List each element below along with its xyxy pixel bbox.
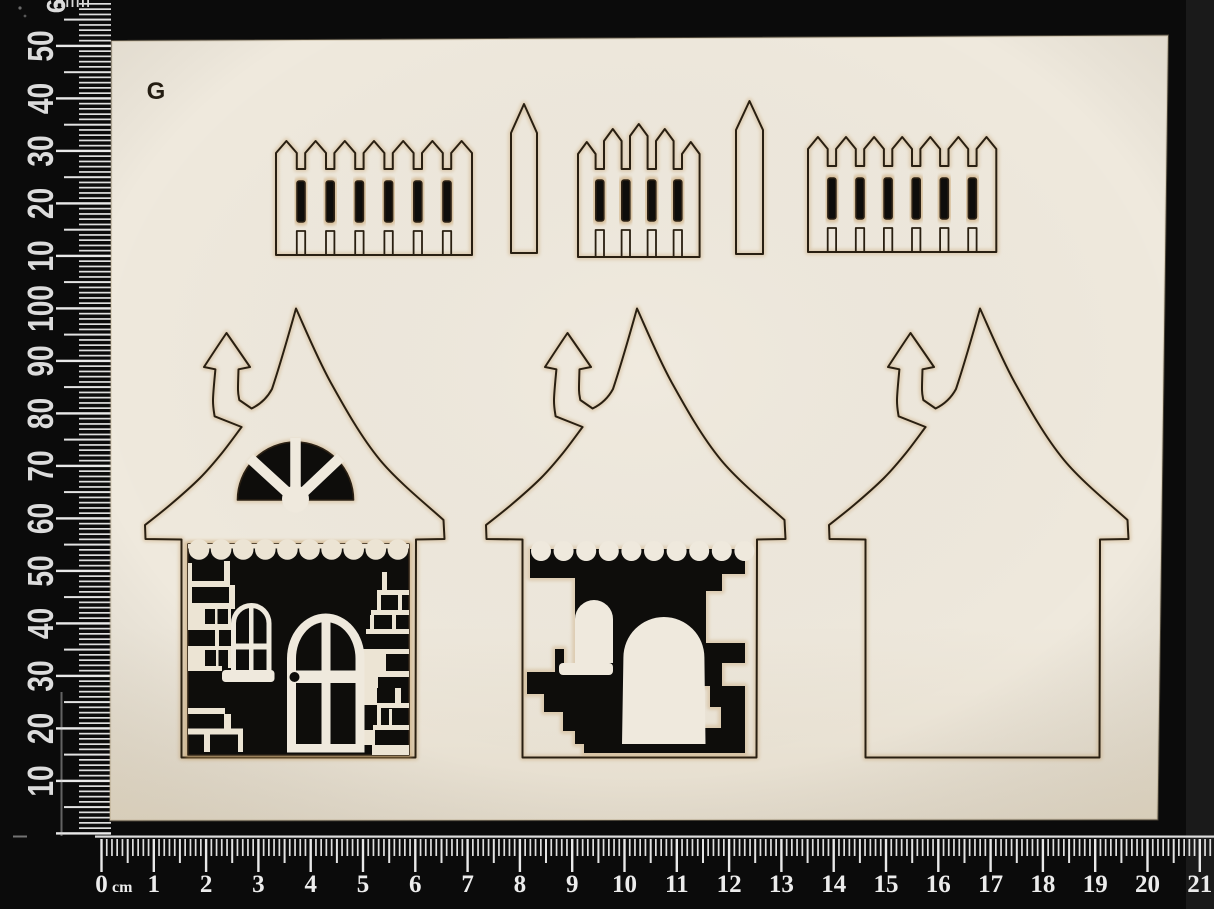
svg-text:5: 5	[357, 871, 370, 898]
svg-text:16: 16	[926, 871, 951, 898]
svg-text:20: 20	[1135, 871, 1160, 898]
svg-text:13: 13	[769, 871, 794, 898]
svg-text:G: G	[147, 78, 166, 105]
svg-text:90: 90	[21, 345, 61, 376]
svg-text:10: 10	[612, 871, 637, 898]
svg-text:1: 1	[148, 871, 161, 898]
svg-text:40: 40	[21, 83, 61, 114]
svg-text:9: 9	[566, 871, 579, 898]
svg-text:80: 80	[21, 398, 61, 429]
svg-text:50: 50	[21, 30, 61, 61]
svg-text:7: 7	[461, 871, 474, 898]
svg-text:100: 100	[21, 285, 61, 332]
svg-text:17: 17	[978, 871, 1003, 898]
svg-text:30: 30	[21, 660, 61, 691]
svg-text:18: 18	[1030, 871, 1055, 898]
svg-text:cm: cm	[112, 879, 133, 896]
svg-text:10: 10	[21, 240, 61, 271]
svg-text:21: 21	[1187, 871, 1212, 898]
svg-text:8: 8	[514, 871, 527, 898]
svg-text:50: 50	[21, 555, 61, 586]
svg-text:20: 20	[21, 188, 61, 219]
svg-text:10: 10	[21, 765, 61, 796]
svg-text:30: 30	[21, 135, 61, 166]
svg-text:70: 70	[21, 450, 61, 481]
svg-text:6: 6	[409, 871, 422, 898]
svg-text:4: 4	[304, 871, 317, 898]
svg-text:0: 0	[95, 871, 108, 898]
svg-text:19: 19	[1083, 871, 1108, 898]
svg-text:6: 6	[41, 0, 71, 13]
svg-text:3: 3	[252, 871, 265, 898]
svg-text:14: 14	[821, 871, 847, 898]
svg-text:20: 20	[21, 713, 61, 744]
svg-text:12: 12	[717, 871, 742, 898]
svg-text:60: 60	[21, 503, 61, 534]
svg-text:11: 11	[665, 871, 689, 898]
svg-text:40: 40	[21, 608, 61, 639]
svg-text:15: 15	[874, 871, 899, 898]
svg-text:2: 2	[200, 871, 213, 898]
